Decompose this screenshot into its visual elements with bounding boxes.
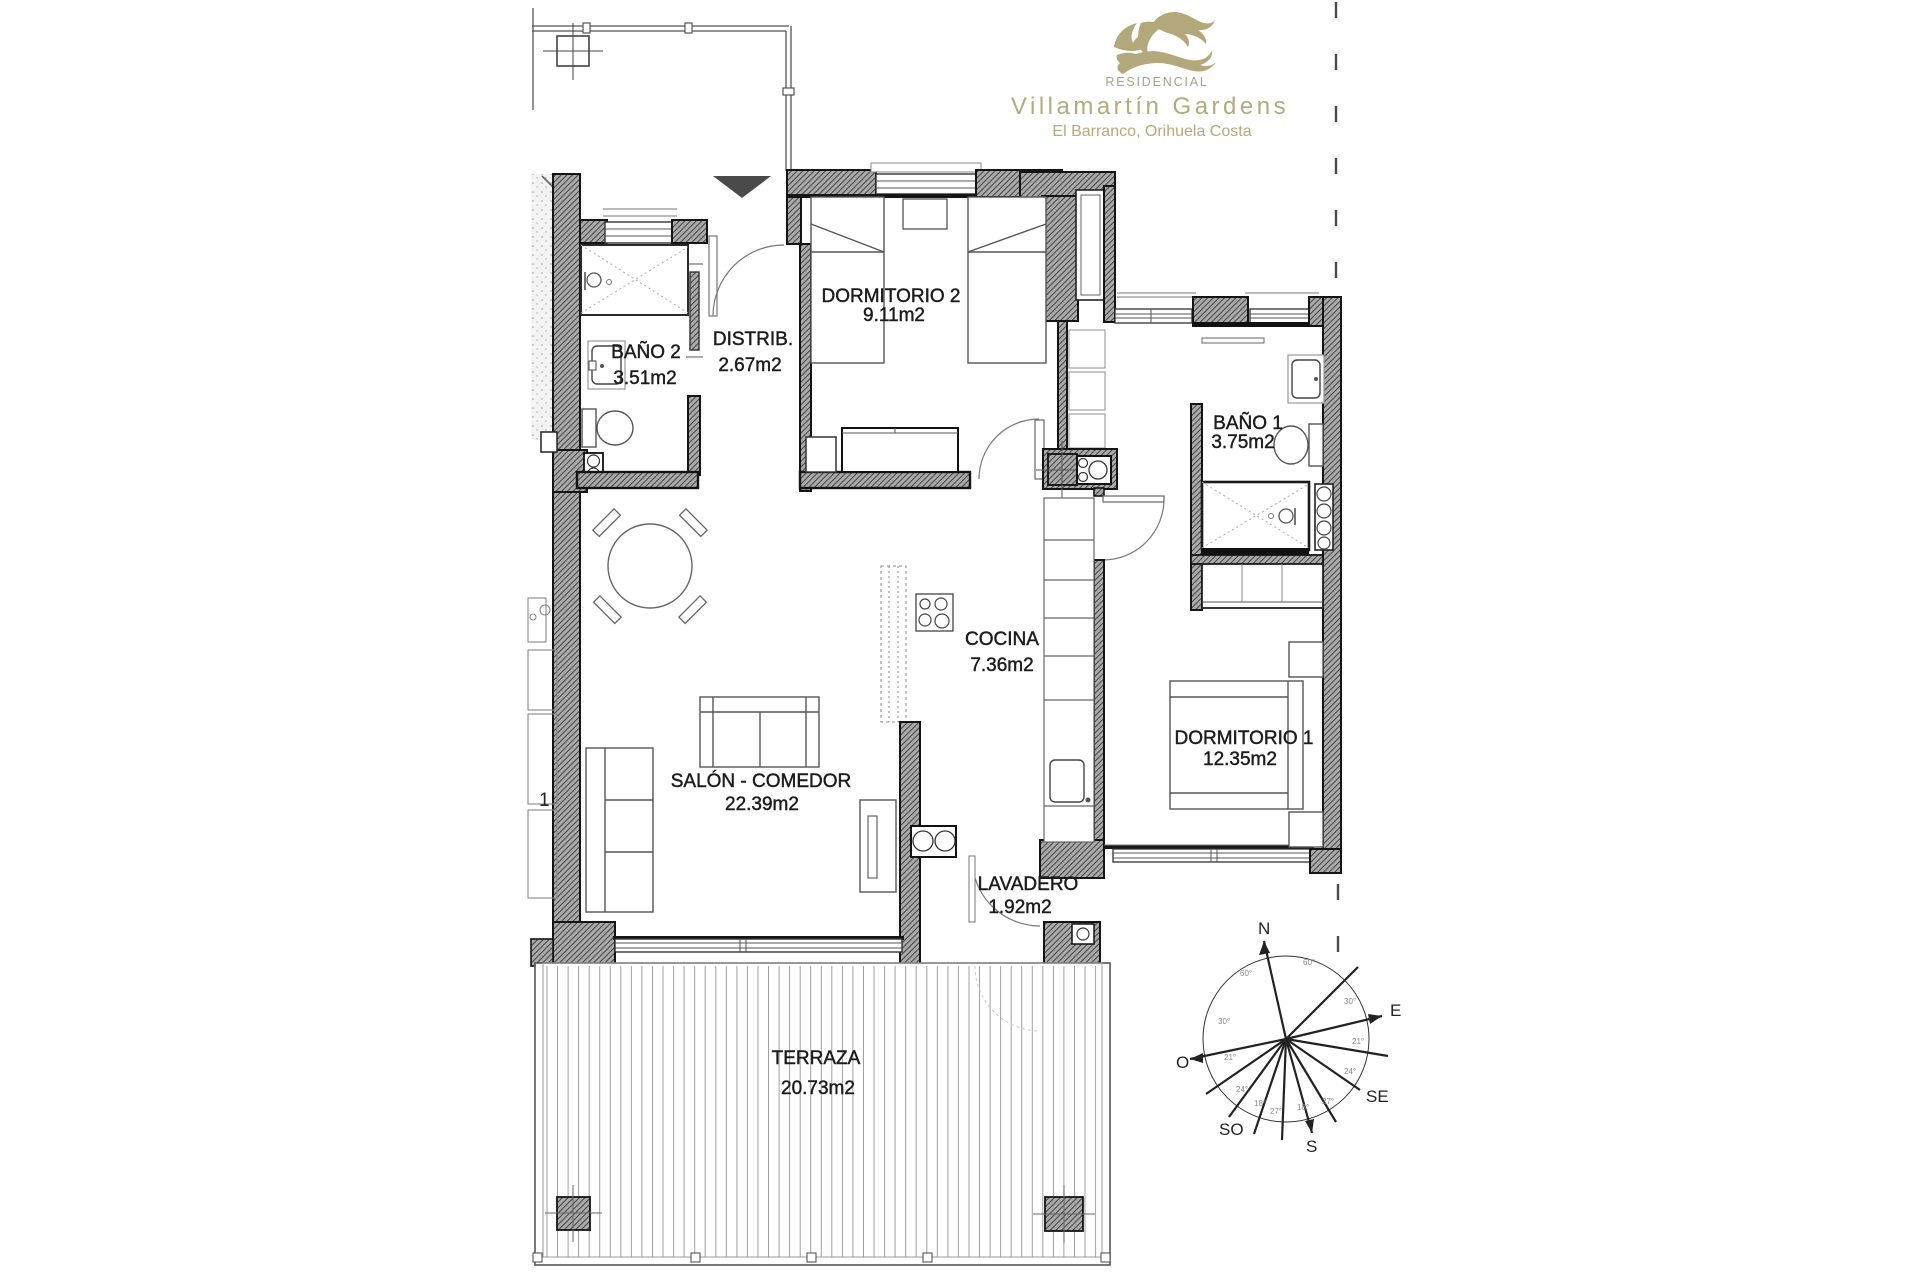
svg-text:18°: 18°: [1297, 1103, 1309, 1112]
svg-text:30°: 30°: [1218, 1017, 1230, 1026]
svg-text:DORMITORIO 1: DORMITORIO 1: [1175, 728, 1314, 749]
svg-text:SO: SO: [1219, 1120, 1244, 1139]
svg-text:20.73m2: 20.73m2: [781, 1078, 855, 1099]
svg-text:TERRAZA: TERRAZA: [772, 1048, 861, 1069]
svg-text:1.92m2: 1.92m2: [988, 897, 1051, 918]
svg-text:1: 1: [539, 790, 550, 811]
svg-text:E: E: [1390, 1001, 1401, 1020]
svg-text:BAÑO 2: BAÑO 2: [611, 341, 681, 363]
svg-text:21°: 21°: [1224, 1053, 1236, 1062]
svg-text:BAÑO 1: BAÑO 1: [1213, 412, 1283, 434]
svg-text:S: S: [1306, 1137, 1317, 1156]
svg-text:60°: 60°: [1240, 969, 1252, 978]
svg-text:2.67m2: 2.67m2: [718, 355, 781, 376]
svg-text:24°: 24°: [1236, 1085, 1248, 1094]
svg-text:COCINA: COCINA: [965, 629, 1039, 650]
svg-text:O: O: [1176, 1053, 1189, 1072]
svg-text:N: N: [1258, 919, 1270, 938]
svg-text:RESIDENCIAL: RESIDENCIAL: [1105, 75, 1208, 89]
svg-text:SALÓN - COMEDOR: SALÓN - COMEDOR: [671, 770, 852, 792]
svg-text:DISTRIB.: DISTRIB.: [713, 329, 793, 350]
svg-text:9.11m2: 9.11m2: [863, 305, 925, 326]
svg-text:7.36m2: 7.36m2: [970, 655, 1033, 676]
svg-text:El Barranco, Orihuela Costa: El Barranco, Orihuela Costa: [1052, 123, 1251, 140]
svg-text:24°: 24°: [1344, 1067, 1356, 1076]
svg-text:DORMITORIO 2: DORMITORIO 2: [822, 286, 961, 307]
svg-text:SE: SE: [1366, 1087, 1389, 1106]
svg-text:30°: 30°: [1344, 997, 1356, 1006]
svg-text:3.75m2: 3.75m2: [1211, 432, 1274, 453]
svg-text:LAVADERO: LAVADERO: [978, 874, 1079, 895]
svg-text:Villamartín Gardens: Villamartín Gardens: [1011, 93, 1289, 120]
svg-text:27°: 27°: [1270, 1107, 1282, 1116]
svg-text:22.39m2: 22.39m2: [725, 794, 799, 815]
svg-text:27°: 27°: [1322, 1097, 1334, 1106]
svg-text:12.35m2: 12.35m2: [1203, 749, 1277, 770]
svg-text:18°: 18°: [1254, 1099, 1266, 1108]
svg-text:3.51m2: 3.51m2: [613, 368, 676, 389]
svg-text:60°: 60°: [1303, 958, 1315, 967]
svg-text:21°: 21°: [1352, 1037, 1364, 1046]
